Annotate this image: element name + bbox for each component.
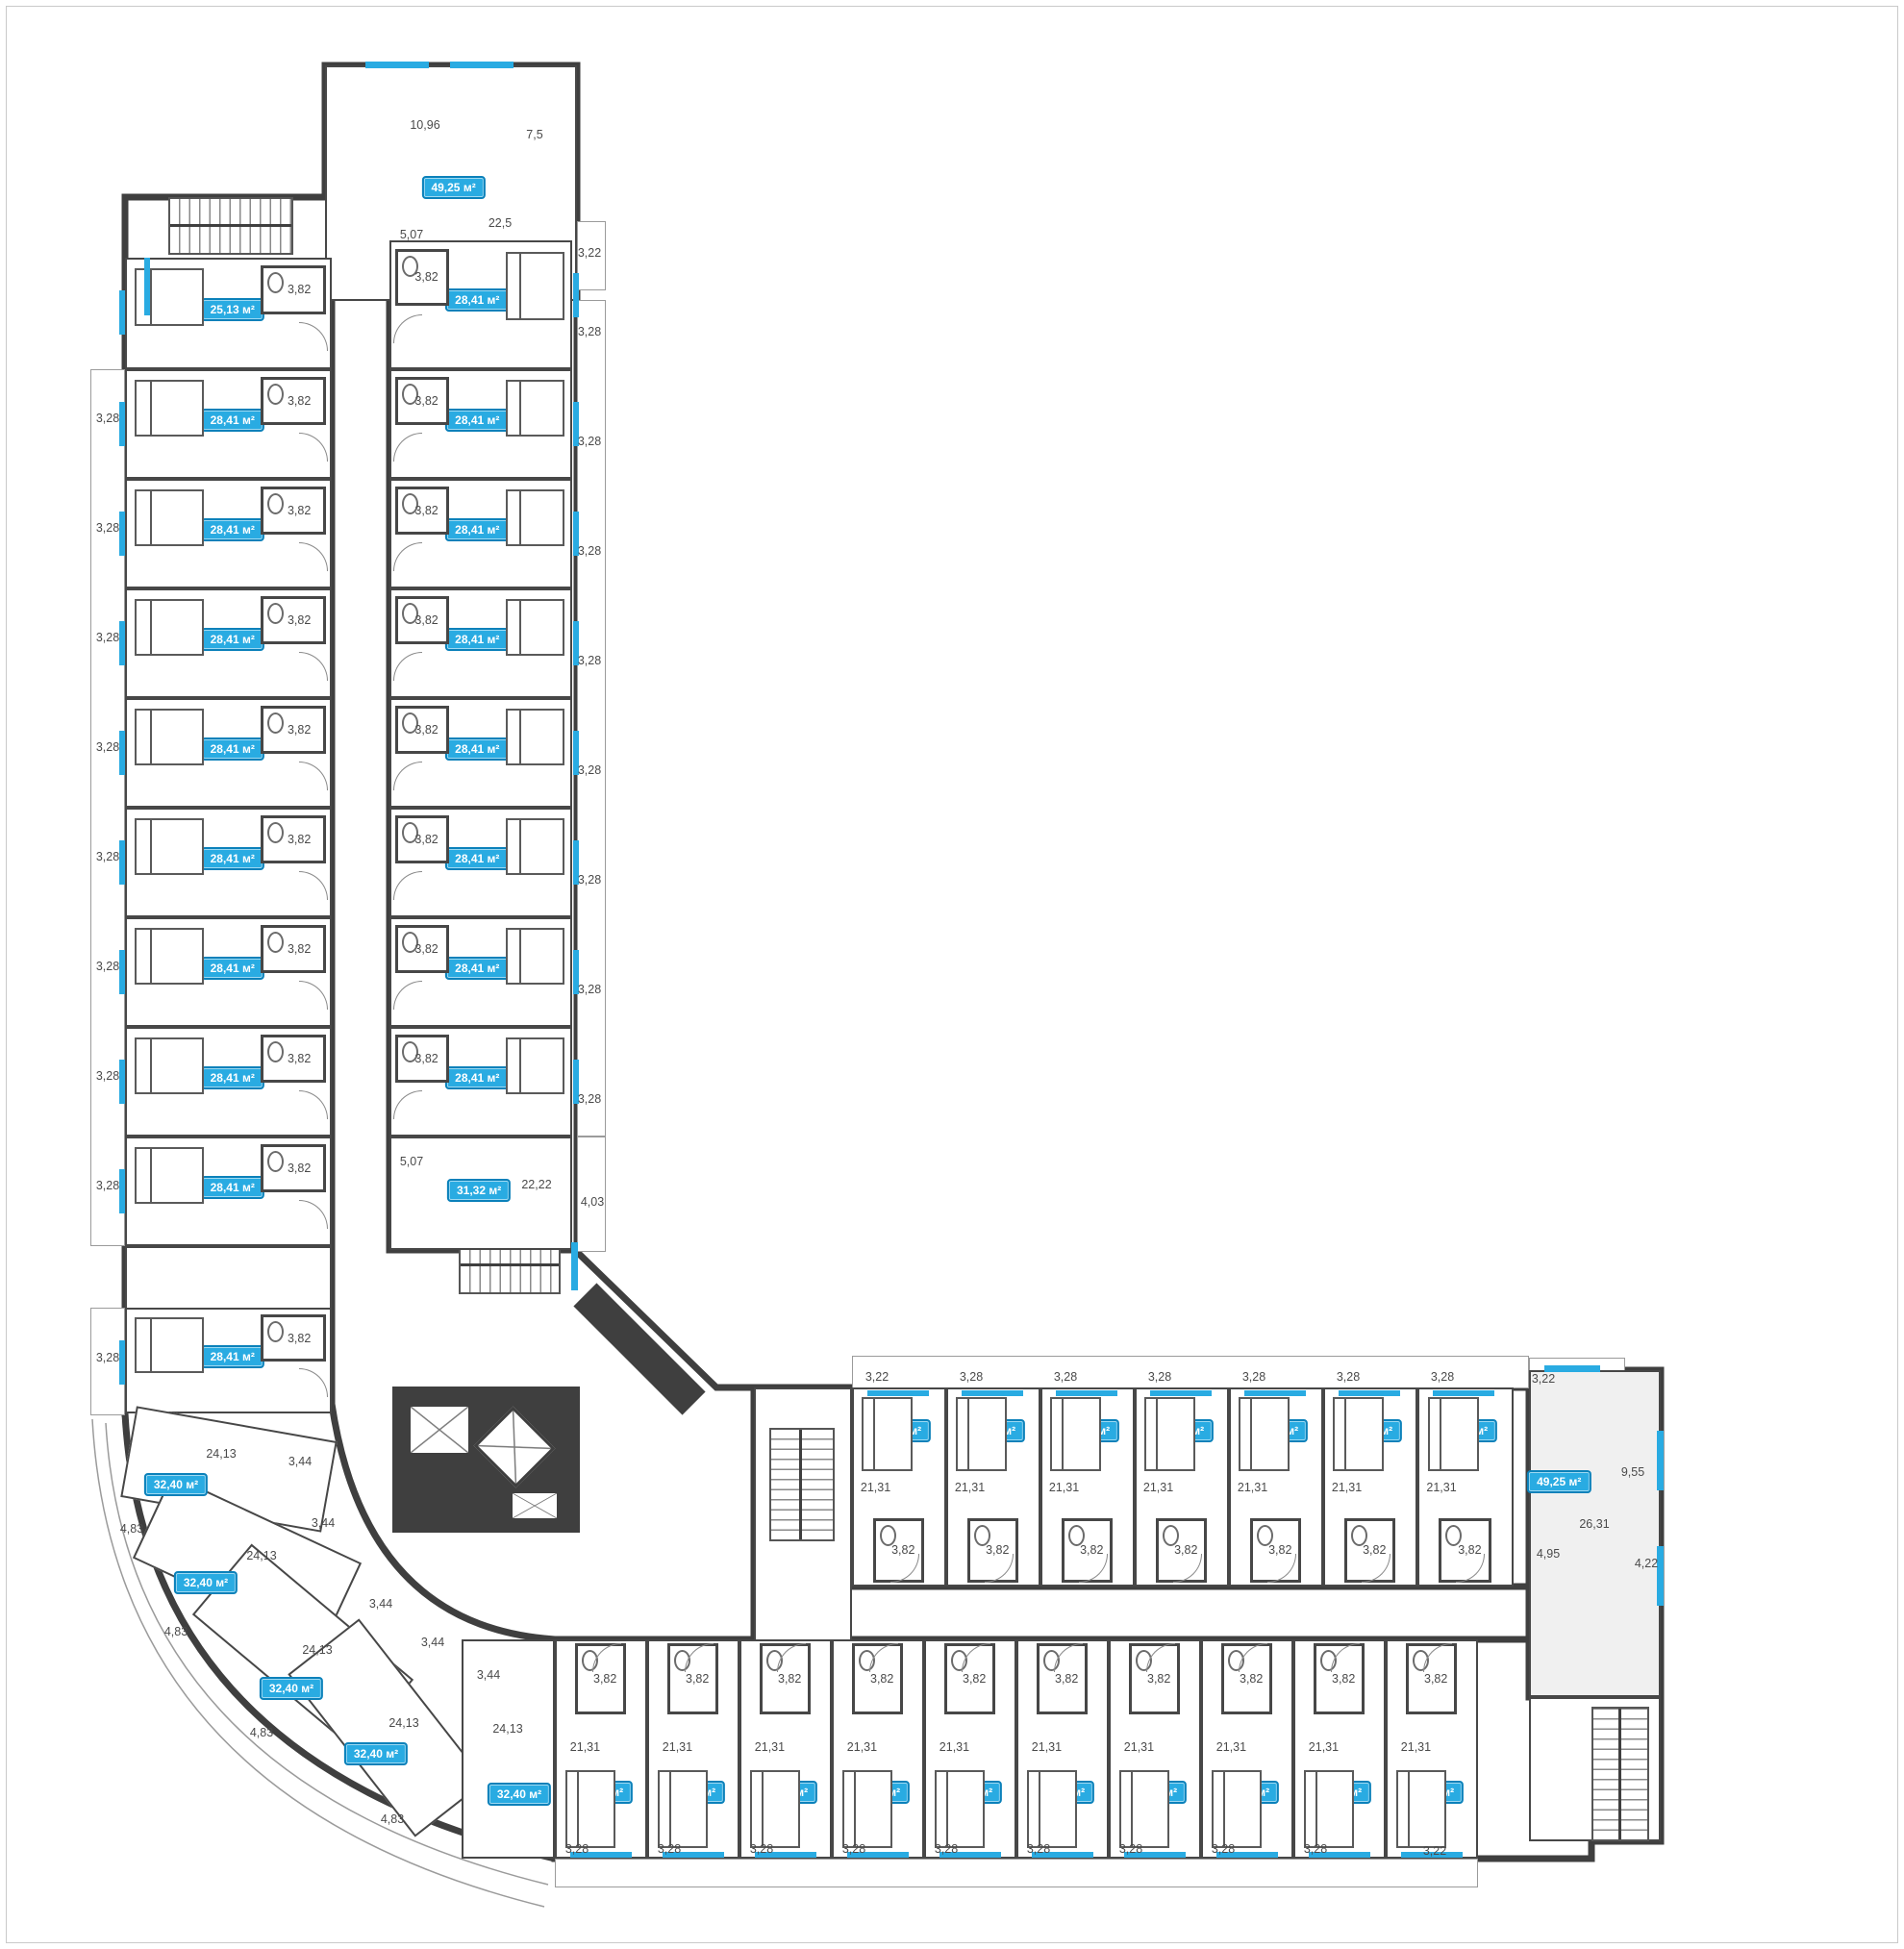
balcony: [90, 369, 125, 1246]
door-arc: [299, 433, 328, 462]
dimension-label: 3,28: [1212, 1842, 1235, 1856]
window-marker: [119, 840, 125, 885]
door-arc: [393, 1090, 422, 1119]
bed-icon: [506, 252, 564, 319]
dimension-label: 3,28: [96, 850, 119, 863]
bathroom: 3,82: [395, 249, 449, 307]
unit: 28,41 м²21,313,82: [1417, 1387, 1514, 1587]
bathroom-area-label: 3,82: [778, 1672, 801, 1686]
unit: 28,41 м²21,313,82: [389, 369, 572, 479]
bathroom: 3,82: [261, 377, 326, 426]
window-marker: [1657, 1431, 1664, 1490]
bathroom-area-label: 3,82: [963, 1672, 986, 1686]
room-area-label: 21,31: [955, 1481, 985, 1494]
dimension-label: 7,5: [526, 128, 542, 141]
dimension-label: 4,83: [250, 1726, 273, 1739]
window-marker: [119, 402, 125, 446]
bathroom: 3,82: [261, 815, 326, 864]
unit-area-badge[interactable]: 28,41 м²: [445, 409, 509, 432]
window-marker: [365, 62, 429, 68]
dimension-label: 3,28: [578, 983, 601, 996]
dimension-label: 5,07: [400, 1155, 423, 1168]
window-marker: [119, 950, 125, 994]
bathroom-area-label: 3,82: [414, 504, 438, 517]
unit: 28,41 м²21,313,82: [125, 698, 332, 808]
dimension-label: 3,28: [1337, 1370, 1360, 1384]
plan-canvas: 49,25 м²25,13 м²21,313,8228,41 м²21,313,…: [0, 0, 1904, 1949]
door-arc: [299, 652, 328, 681]
unit: 28,41 м²21,313,82: [389, 588, 572, 698]
bathroom: 3,82: [261, 265, 326, 315]
door-arc: [393, 762, 422, 790]
window-marker: [144, 258, 150, 315]
room-area-label: 21,31: [1238, 1481, 1267, 1494]
bed-icon: [658, 1770, 708, 1848]
dimension-label: 3,44: [288, 1455, 312, 1468]
door-arc: [393, 981, 422, 1010]
bed-icon: [1144, 1397, 1195, 1471]
dimension-label: 3,28: [578, 325, 601, 338]
room-area-label: 21,31: [1426, 1481, 1456, 1494]
window-marker: [1544, 1365, 1600, 1372]
bed-icon: [135, 709, 204, 765]
dimension-label: 3,22: [578, 246, 601, 260]
bed-icon: [1027, 1770, 1077, 1848]
balcony: [577, 1137, 606, 1252]
bathroom: 3,82: [261, 1035, 326, 1084]
elevator: [408, 1404, 471, 1456]
unit: 28,41 м²21,313,82: [125, 808, 332, 917]
unit: 28,41 м²21,313,82: [125, 1308, 332, 1413]
bed-icon: [956, 1397, 1007, 1471]
dimension-label: 3,28: [1431, 1370, 1454, 1384]
unit-area-badge[interactable]: 28,41 м²: [201, 1066, 264, 1089]
unit-area-badge[interactable]: 32,40 м²: [144, 1473, 208, 1496]
bathroom-area-label: 3,82: [1424, 1672, 1447, 1686]
unit-area-badge[interactable]: 49,25 м²: [421, 176, 485, 199]
room-area-label: 21,31: [1143, 1481, 1173, 1494]
dimension-label: 3,28: [1027, 1842, 1050, 1856]
unit: 28,41 м²21,313,82: [389, 698, 572, 808]
unit: 28,41 м²21,313,82: [1323, 1387, 1417, 1587]
floor-plan: 49,25 м²25,13 м²21,313,8228,41 м²21,313,…: [0, 0, 1904, 1949]
window-marker: [119, 1340, 125, 1385]
dimension-label: 3,44: [421, 1636, 444, 1649]
dimension-label: 24,13: [492, 1722, 522, 1736]
dimension-label: 4,95: [1537, 1547, 1560, 1561]
elevator: [510, 1490, 560, 1521]
unit: 28,41 м²21,313,82: [946, 1387, 1040, 1587]
unit-area-badge[interactable]: 49,25 м²: [1527, 1470, 1591, 1493]
bathroom: 3,82: [261, 596, 326, 645]
bed-icon: [1333, 1397, 1384, 1471]
unit: 28,41 м²21,313,82: [389, 240, 572, 369]
unit: 28,41 м²21,313,82: [924, 1639, 1016, 1859]
dimension-label: 22,5: [489, 216, 512, 230]
dimension-label: 22,22: [521, 1178, 551, 1191]
unit: [462, 1639, 555, 1859]
bathroom: 3,82: [395, 1035, 449, 1084]
dimension-label: 3,28: [96, 521, 119, 535]
unit: 28,41 м²21,313,82: [1293, 1639, 1386, 1859]
bathroom-area-label: 3,82: [1240, 1672, 1263, 1686]
dimension-label: 3,28: [578, 435, 601, 448]
room-area-label: 21,31: [1049, 1481, 1079, 1494]
unit: 28,41 м²21,313,82: [389, 479, 572, 588]
window-marker: [1056, 1390, 1117, 1396]
window-marker: [450, 62, 514, 68]
bathroom-area-label: 3,82: [1055, 1672, 1078, 1686]
unit: 28,41 м²21,313,82: [125, 1027, 332, 1137]
dimension-label: 3,28: [1242, 1370, 1265, 1384]
dimension-label: 3,28: [842, 1842, 865, 1856]
unit: 28,41 м²21,313,82: [389, 917, 572, 1027]
dimension-label: 3,28: [658, 1842, 681, 1856]
window-marker: [119, 512, 125, 556]
unit: 28,41 м²21,313,82: [1109, 1639, 1201, 1859]
dimension-label: 3,28: [96, 960, 119, 973]
unit: 49,25 м²: [1529, 1370, 1661, 1697]
unit: 31,32 м²: [389, 1137, 572, 1250]
bed-icon: [506, 489, 564, 546]
dimension-label: 3,28: [578, 763, 601, 777]
bed-icon: [506, 380, 564, 437]
unit-area-badge[interactable]: 28,41 м²: [201, 957, 264, 980]
dimension-label: 24,13: [302, 1643, 332, 1657]
dimension-label: 3,28: [935, 1842, 958, 1856]
unit: 28,35 м²21,313,82: [852, 1387, 946, 1587]
unit: 28,41 м²21,313,82: [389, 808, 572, 917]
window-marker: [119, 621, 125, 665]
dimension-label: 26,31: [1579, 1517, 1609, 1531]
unit-area-badge[interactable]: 28,41 м²: [201, 1176, 264, 1199]
bathroom-area-label: 3,82: [288, 1162, 311, 1175]
bathroom-area-label: 3,82: [1147, 1672, 1170, 1686]
unit: 28,41 м²21,313,82: [125, 1137, 332, 1246]
unit: 28,41 м²21,313,82: [1201, 1639, 1293, 1859]
bed-icon: [565, 1770, 615, 1848]
unit-area-badge[interactable]: 28,41 м²: [445, 628, 509, 651]
bed-icon: [862, 1397, 913, 1471]
dimension-label: 4,22: [1635, 1557, 1658, 1570]
window-marker: [119, 1060, 125, 1104]
room-area-label: 21,31: [570, 1740, 600, 1754]
bed-icon: [1304, 1770, 1354, 1848]
bathroom-area-label: 3,82: [414, 270, 438, 284]
room-area-label: 21,31: [755, 1740, 785, 1754]
dimension-label: 3,28: [578, 873, 601, 887]
unit: 28,41 м²21,313,82: [125, 369, 332, 479]
door-arc: [299, 542, 328, 571]
dimension-label: 3,22: [1532, 1372, 1555, 1386]
bathroom-area-label: 3,82: [414, 723, 438, 737]
bed-icon: [135, 1317, 204, 1372]
dimension-label: 4,83: [381, 1812, 404, 1826]
unit: 25,13 м²21,313,82: [125, 258, 332, 369]
door-arc: [299, 871, 328, 900]
room-area-label: 21,31: [1124, 1740, 1154, 1754]
dimension-label: 24,13: [246, 1549, 276, 1562]
window-marker: [867, 1390, 929, 1396]
dimension-label: 9,55: [1621, 1465, 1644, 1479]
unit-area-badge[interactable]: 28,41 м²: [201, 1345, 264, 1368]
bed-icon: [135, 818, 204, 875]
bathroom: 3,82: [395, 815, 449, 864]
bed-icon: [135, 599, 204, 656]
unit: 28,41 м²21,313,82: [125, 479, 332, 588]
bathroom-area-label: 3,82: [288, 504, 311, 517]
unit: 28,41 м²21,313,82: [125, 917, 332, 1027]
bathroom-area-label: 3,82: [414, 613, 438, 627]
door-arc: [299, 1200, 328, 1229]
bathroom-area-label: 3,82: [414, 394, 438, 408]
bed-icon: [135, 928, 204, 985]
dimension-label: 3,22: [1423, 1844, 1446, 1858]
room-area-label: 21,31: [1032, 1740, 1062, 1754]
bathroom: 3,82: [395, 596, 449, 645]
room-area-label: 21,31: [663, 1740, 692, 1754]
dimension-label: 3,28: [1304, 1842, 1327, 1856]
unit-area-badge[interactable]: 32,40 м²: [174, 1571, 238, 1594]
bathroom-area-label: 3,82: [686, 1672, 709, 1686]
unit-area-badge[interactable]: 25,13 м²: [201, 298, 264, 321]
room-area-label: 21,31: [1332, 1481, 1362, 1494]
bathroom: 3,82: [395, 377, 449, 426]
unit-area-badge[interactable]: 32,40 м²: [344, 1742, 408, 1765]
unit: 28,41 м²21,313,82: [832, 1639, 924, 1859]
bathroom-area-label: 3,82: [288, 833, 311, 846]
bed-icon: [135, 380, 204, 437]
dimension-label: 4,83: [120, 1522, 143, 1536]
bathroom-area-label: 3,82: [288, 394, 311, 408]
room-area-label: 21,31: [1401, 1740, 1431, 1754]
window-marker: [119, 731, 125, 775]
unit: 28,41 м²21,313,82: [555, 1639, 647, 1859]
dimension-label: 3,28: [96, 1351, 119, 1364]
door-arc: [393, 433, 422, 462]
dimension-label: 3,28: [96, 1069, 119, 1083]
bathroom-area-label: 3,82: [1332, 1672, 1355, 1686]
window-marker: [1150, 1390, 1212, 1396]
unit-area-badge[interactable]: 28,41 м²: [445, 737, 509, 761]
dimension-label: 3,44: [312, 1516, 335, 1530]
bathroom: 3,82: [261, 925, 326, 974]
unit: 28,41 м²21,313,82: [1016, 1639, 1109, 1859]
dimension-label: 5,07: [400, 228, 423, 241]
door-arc: [299, 1090, 328, 1119]
unit: 28,41 м²21,313,82: [125, 588, 332, 698]
bathroom-area-label: 3,82: [288, 1332, 311, 1345]
dimension-label: 3,44: [369, 1597, 392, 1611]
bathroom-area-label: 3,82: [414, 942, 438, 956]
dimension-label: 3,22: [865, 1370, 889, 1384]
dimension-label: 3,28: [96, 740, 119, 754]
bathroom-area-label: 3,82: [414, 1052, 438, 1065]
bathroom-area-label: 3,82: [414, 833, 438, 846]
unit: 28,41 м²21,313,82: [739, 1639, 832, 1859]
door-arc: [393, 652, 422, 681]
bed-icon: [135, 1037, 204, 1094]
dimension-label: 4,83: [164, 1625, 188, 1638]
bathroom: 3,82: [261, 487, 326, 536]
dimension-label: 3,28: [96, 412, 119, 425]
bathroom-area-label: 3,82: [288, 613, 311, 627]
bathroom-area-label: 3,82: [288, 942, 311, 956]
door-arc: [299, 762, 328, 790]
bed-icon: [135, 1147, 204, 1204]
bed-icon: [1050, 1397, 1101, 1471]
bed-icon: [506, 1037, 564, 1094]
bed-icon: [1119, 1770, 1169, 1848]
window-marker: [119, 290, 125, 335]
dimension-label: 24,13: [388, 1716, 418, 1730]
unit-area-badge[interactable]: 28,41 м²: [445, 1066, 509, 1089]
balcony: [852, 1356, 1529, 1388]
dimension-label: 4,03: [581, 1195, 604, 1209]
dimension-label: 3,28: [1054, 1370, 1077, 1384]
window-marker: [1244, 1390, 1306, 1396]
unit-area-badge[interactable]: 28,41 м²: [445, 518, 509, 541]
dimension-label: 3,28: [96, 1179, 119, 1192]
door-arc: [393, 871, 422, 900]
unit: 28,41 м²21,313,82: [1135, 1387, 1229, 1587]
window-marker: [119, 1169, 125, 1213]
bathroom-area-label: 3,82: [288, 723, 311, 737]
balcony: [577, 300, 606, 1137]
unit-area-badge[interactable]: 28,41 м²: [445, 288, 509, 312]
bed-icon: [506, 818, 564, 875]
bathroom-area-label: 3,82: [870, 1672, 893, 1686]
bathroom: 3,82: [261, 706, 326, 755]
unit-area-badge[interactable]: 28,41 м²: [201, 737, 264, 761]
bathroom: 3,82: [395, 706, 449, 755]
room-area-label: 21,31: [939, 1740, 969, 1754]
bed-icon: [135, 489, 204, 546]
balcony: [555, 1859, 1478, 1887]
room-area-label: 21,31: [847, 1740, 877, 1754]
room-area-label: 21,31: [1216, 1740, 1246, 1754]
unit-area-badge[interactable]: 28,41 м²: [201, 409, 264, 432]
window-marker: [573, 273, 579, 317]
unit: 28,41 м²21,313,82: [1040, 1387, 1135, 1587]
bathroom-area-label: 3,82: [288, 283, 311, 296]
bed-icon: [506, 599, 564, 656]
unit: 28,41 м²21,313,82: [1229, 1387, 1323, 1587]
unit-area-badge[interactable]: 28,41 м²: [445, 957, 509, 980]
dimension-label: 3,28: [578, 1092, 601, 1106]
bathroom: 3,82: [395, 487, 449, 536]
dimension-label: 3,44: [477, 1668, 500, 1682]
bathroom-area-label: 3,82: [593, 1672, 616, 1686]
room-area-label: 21,31: [861, 1481, 890, 1494]
staircase: [769, 1428, 835, 1541]
door-arc: [299, 1368, 328, 1397]
door-arc: [299, 981, 328, 1010]
dimension-label: 3,28: [960, 1370, 983, 1384]
unit-area-badge[interactable]: 32,40 м²: [260, 1677, 323, 1700]
bathroom-area-label: 3,82: [288, 1052, 311, 1065]
staircase: [168, 197, 293, 255]
bed-icon: [750, 1770, 800, 1848]
bathroom: 3,82: [261, 1314, 326, 1362]
dimension-label: 10,96: [410, 118, 439, 132]
bathroom: 3,82: [395, 925, 449, 974]
bed-icon: [506, 928, 564, 985]
bed-icon: [1396, 1770, 1446, 1848]
door-arc: [393, 314, 422, 343]
hall-room: [125, 1246, 332, 1310]
bathroom: 3,82: [261, 1144, 326, 1193]
door-arc: [393, 542, 422, 571]
unit: 28,41 м²21,313,82: [389, 1027, 572, 1137]
door-arc: [299, 322, 328, 351]
window-marker: [962, 1390, 1023, 1396]
unit: 28,41 м²21,313,82: [647, 1639, 739, 1859]
bed-icon: [935, 1770, 985, 1848]
window-marker: [1433, 1390, 1494, 1396]
dimension-label: 3,28: [750, 1842, 773, 1856]
bed-icon: [1428, 1397, 1480, 1471]
unit: 28,35 м²21,313,82: [1386, 1639, 1478, 1859]
dimension-label: 3,28: [1119, 1842, 1142, 1856]
window-marker: [1339, 1390, 1400, 1396]
dimension-label: 3,28: [565, 1842, 589, 1856]
staircase: [1591, 1707, 1649, 1841]
unit-area-badge[interactable]: 28,41 м²: [445, 847, 509, 870]
unit-area-badge[interactable]: 28,41 м²: [201, 518, 264, 541]
dimension-label: 3,28: [578, 544, 601, 558]
unit-area-badge[interactable]: 32,40 м²: [488, 1783, 551, 1806]
room-area-label: 21,31: [1309, 1740, 1339, 1754]
dimension-label: 3,28: [1148, 1370, 1171, 1384]
unit-area-badge[interactable]: 28,41 м²: [201, 847, 264, 870]
dimension-label: 3,28: [578, 654, 601, 667]
bed-icon: [1212, 1770, 1262, 1848]
unit-area-badge[interactable]: 28,41 м²: [201, 628, 264, 651]
unit-area-badge[interactable]: 31,32 м²: [447, 1179, 511, 1202]
window-marker: [571, 1242, 578, 1290]
bed-icon: [1239, 1397, 1290, 1471]
window-marker: [1657, 1546, 1664, 1606]
bed-icon: [842, 1770, 892, 1848]
dimension-label: 3,28: [96, 631, 119, 644]
dimension-label: 24,13: [206, 1447, 236, 1461]
bed-icon: [506, 709, 564, 765]
